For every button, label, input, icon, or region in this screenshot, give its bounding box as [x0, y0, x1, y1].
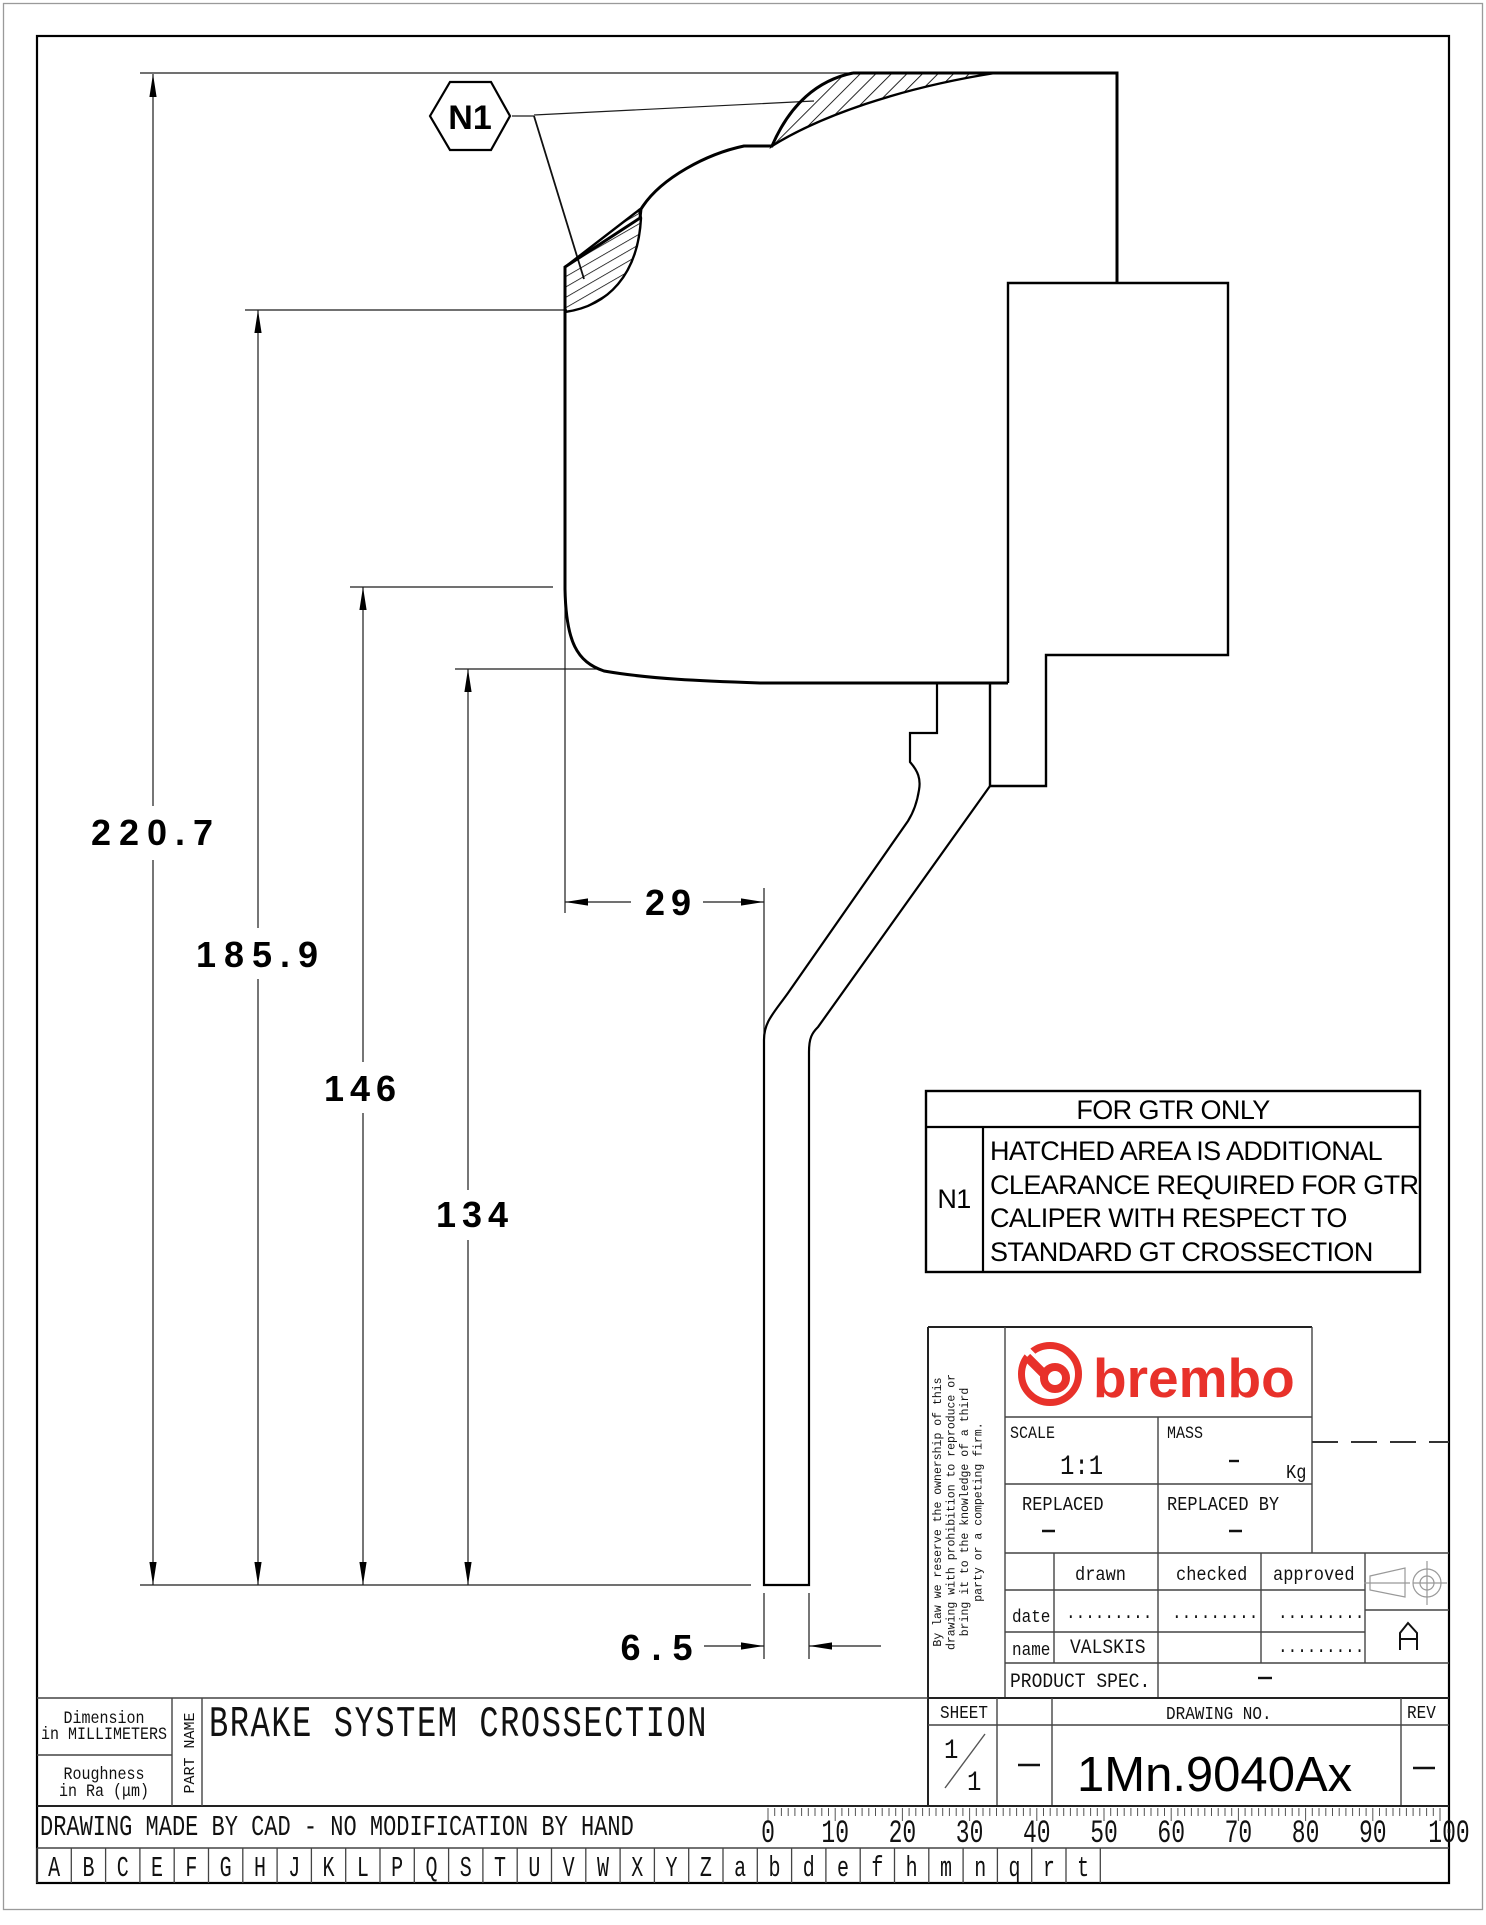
svg-text:J: J — [288, 1853, 300, 1886]
svg-text:VALSKIS: VALSKIS — [1070, 1636, 1146, 1659]
svg-text:b: b — [768, 1853, 780, 1886]
svg-text:0: 0 — [761, 1817, 775, 1853]
svg-text:n: n — [974, 1853, 986, 1886]
svg-text:B: B — [82, 1853, 94, 1886]
svg-text:Kg: Kg — [1286, 1463, 1306, 1484]
svg-text:10: 10 — [821, 1817, 849, 1853]
svg-text:d: d — [803, 1853, 815, 1886]
svg-text:E: E — [151, 1853, 163, 1886]
svg-text:Z: Z — [700, 1853, 712, 1886]
svg-text:6.5: 6.5 — [620, 1627, 703, 1668]
svg-text:By law we reserve the ownershi: By law we reserve the ownership of this — [932, 1377, 945, 1646]
svg-text:h: h — [906, 1853, 918, 1886]
svg-text:FOR GTR ONLY: FOR GTR ONLY — [1076, 1095, 1270, 1125]
svg-text:f: f — [871, 1853, 883, 1886]
svg-text:drawing with prohibition to re: drawing with prohibition to reproduce or — [946, 1374, 959, 1650]
svg-text:DRAWING MADE BY CAD - NO MODIF: DRAWING MADE BY CAD - NO MODIFICATION BY… — [40, 1811, 634, 1844]
svg-text:.........: ......... — [1278, 1604, 1364, 1624]
svg-text:1: 1 — [967, 1767, 981, 1799]
svg-text:1:1: 1:1 — [1060, 1451, 1103, 1483]
svg-text:N1: N1 — [448, 99, 491, 137]
svg-text:SCALE: SCALE — [1010, 1424, 1055, 1443]
svg-text:REV: REV — [1407, 1704, 1436, 1724]
svg-text:F: F — [185, 1853, 197, 1886]
svg-text:K: K — [323, 1853, 335, 1886]
svg-text:REPLACED: REPLACED — [1022, 1495, 1104, 1516]
svg-text:.........: ......... — [1172, 1604, 1258, 1624]
svg-text:name: name — [1012, 1641, 1050, 1661]
svg-text:N1: N1 — [937, 1184, 970, 1214]
svg-text:m: m — [940, 1853, 952, 1886]
svg-text:70: 70 — [1225, 1817, 1253, 1853]
svg-text:1Mn.9040Ax: 1Mn.9040Ax — [1077, 1748, 1352, 1802]
svg-text:60: 60 — [1157, 1817, 1185, 1853]
svg-text:approved: approved — [1273, 1565, 1355, 1586]
svg-text:r: r — [1043, 1853, 1055, 1886]
svg-text:party or a competing firm.: party or a competing firm. — [973, 1422, 986, 1601]
svg-text:X: X — [631, 1853, 643, 1886]
svg-text:220.7: 220.7 — [91, 812, 221, 853]
svg-text:H: H — [254, 1853, 266, 1886]
svg-text:BRAKE SYSTEM CROSSECTION: BRAKE SYSTEM CROSSECTION — [209, 1701, 708, 1750]
svg-text:MASS: MASS — [1167, 1424, 1203, 1443]
svg-text:U: U — [528, 1853, 540, 1886]
svg-text:a: a — [734, 1853, 746, 1886]
svg-text:185.9: 185.9 — [196, 934, 326, 975]
svg-text:CLEARANCE REQUIRED FOR GTR: CLEARANCE REQUIRED FOR GTR — [990, 1170, 1419, 1200]
svg-text:100: 100 — [1428, 1817, 1469, 1853]
svg-text:t: t — [1077, 1853, 1089, 1886]
svg-text:V: V — [563, 1853, 575, 1886]
svg-text:checked: checked — [1176, 1565, 1247, 1586]
svg-text:drawn: drawn — [1075, 1565, 1126, 1586]
svg-text:P: P — [391, 1853, 403, 1886]
svg-text:29: 29 — [645, 882, 697, 923]
svg-text:in MILLIMETERS: in MILLIMETERS — [41, 1725, 167, 1744]
svg-text:PART NAME: PART NAME — [182, 1712, 199, 1793]
svg-text:30: 30 — [956, 1817, 984, 1853]
svg-text:90: 90 — [1359, 1817, 1387, 1853]
svg-text:in Ra (μm): in Ra (μm) — [59, 1782, 149, 1801]
svg-text:20: 20 — [889, 1817, 917, 1853]
svg-text:W: W — [597, 1853, 609, 1886]
svg-text:50: 50 — [1090, 1817, 1118, 1853]
svg-text:40: 40 — [1023, 1817, 1051, 1853]
svg-text:REPLACED BY: REPLACED BY — [1167, 1495, 1279, 1516]
svg-text:DRAWING NO.: DRAWING NO. — [1166, 1705, 1272, 1725]
svg-text:1: 1 — [944, 1735, 958, 1767]
svg-text:L: L — [357, 1853, 369, 1886]
svg-text:Y: Y — [666, 1853, 678, 1886]
svg-text:brembo: brembo — [1093, 1347, 1295, 1409]
svg-text:SHEET: SHEET — [940, 1704, 988, 1724]
svg-text:G: G — [220, 1853, 232, 1886]
svg-text:134: 134 — [436, 1194, 514, 1235]
svg-text:C: C — [117, 1853, 129, 1886]
svg-text:date: date — [1012, 1608, 1050, 1628]
svg-text:S: S — [460, 1853, 472, 1886]
svg-text:PRODUCT SPEC.: PRODUCT SPEC. — [1010, 1670, 1150, 1693]
svg-text:q: q — [1009, 1853, 1021, 1886]
svg-text:bring it to the knowledge of a: bring it to the knowledge of a third — [959, 1388, 972, 1636]
svg-text:.........: ......... — [1066, 1604, 1152, 1624]
svg-text:STANDARD GT CROSSECTION: STANDARD GT CROSSECTION — [990, 1237, 1373, 1267]
svg-text:e: e — [837, 1853, 849, 1886]
svg-text:A: A — [48, 1853, 60, 1886]
svg-text:80: 80 — [1292, 1817, 1320, 1853]
svg-text:T: T — [494, 1853, 506, 1886]
svg-text:.........: ......... — [1278, 1638, 1364, 1658]
svg-text:Q: Q — [425, 1853, 437, 1886]
svg-text:146: 146 — [324, 1068, 402, 1109]
svg-text:CALIPER WITH RESPECT TO: CALIPER WITH RESPECT TO — [990, 1203, 1347, 1233]
svg-text:HATCHED AREA IS ADDITIONAL: HATCHED AREA IS ADDITIONAL — [990, 1136, 1383, 1166]
